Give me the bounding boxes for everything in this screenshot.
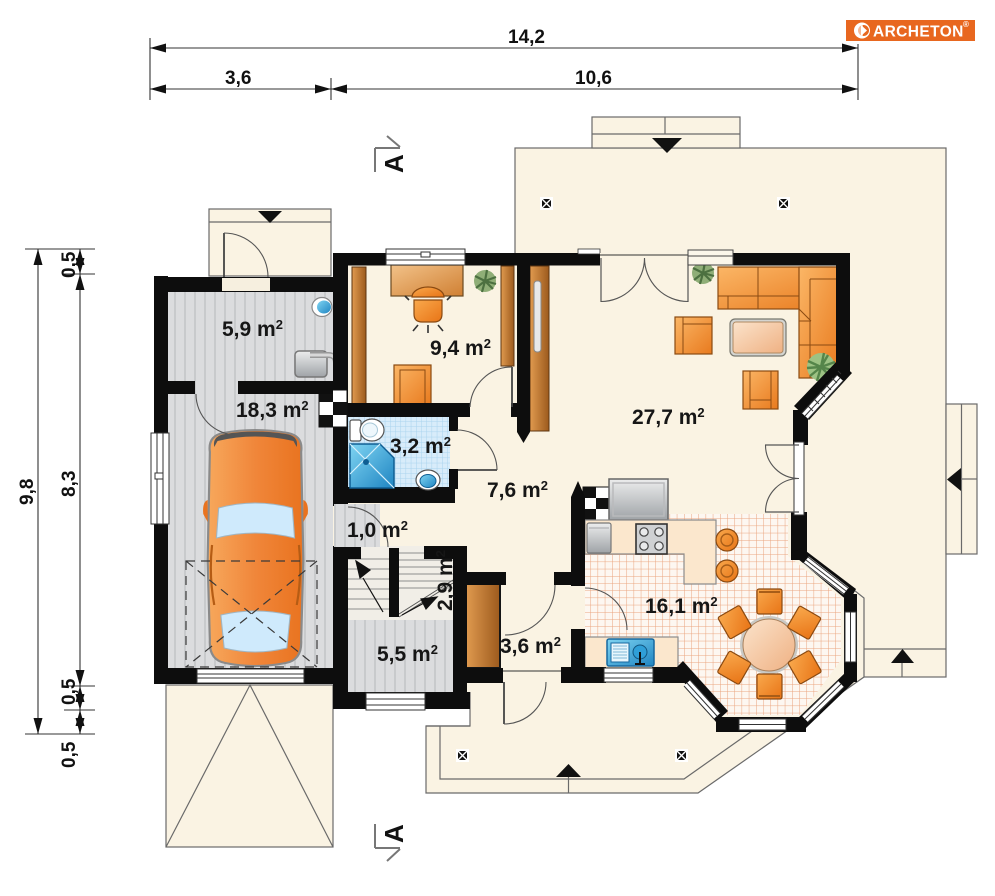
svg-text:A: A	[379, 154, 409, 173]
svg-text:7,6 m2: 7,6 m2	[487, 478, 548, 502]
svg-text:14,2: 14,2	[508, 27, 545, 48]
svg-text:16,1 m2: 16,1 m2	[645, 594, 718, 618]
svg-text:3,6: 3,6	[225, 68, 251, 89]
svg-text:1,0 m2: 1,0 m2	[347, 518, 408, 542]
svg-text:18,3 m2: 18,3 m2	[236, 398, 309, 422]
svg-text:A: A	[379, 824, 409, 843]
svg-text:®: ®	[963, 20, 969, 29]
svg-text:27,7 m2: 27,7 m2	[632, 405, 705, 429]
svg-text:0,5: 0,5	[59, 251, 80, 278]
svg-text:3,2 m2: 3,2 m2	[390, 434, 451, 458]
svg-text:0,5: 0,5	[59, 678, 80, 705]
svg-text:10,6: 10,6	[575, 68, 612, 89]
svg-text:9,8: 9,8	[17, 479, 38, 505]
svg-text:0,5: 0,5	[59, 741, 80, 768]
svg-text:5,5 m2: 5,5 m2	[377, 642, 438, 666]
svg-text:9,4 m2: 9,4 m2	[430, 336, 491, 360]
svg-text:2,9 m2: 2,9 m2	[433, 550, 457, 611]
svg-text:3,6 m2: 3,6 m2	[500, 634, 561, 658]
svg-text:ARCHETON: ARCHETON	[873, 24, 964, 41]
svg-text:8,3: 8,3	[59, 471, 80, 497]
svg-text:5,9 m2: 5,9 m2	[222, 317, 283, 341]
